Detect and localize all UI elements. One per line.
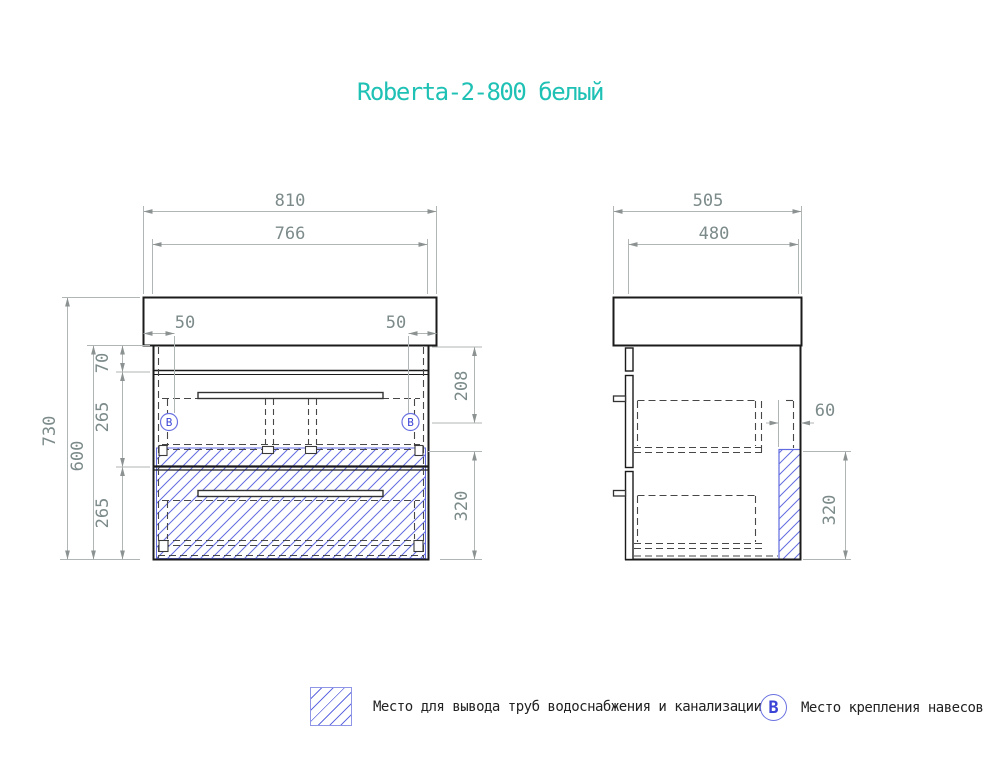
front-pipe-zone-hatch [157,448,426,559]
front-view: В В [40,191,482,560]
dim-600-label: 600 [68,441,88,472]
side-lower-drawer-handle [614,491,626,497]
front-lower-drawer-handle [198,491,383,497]
dim-810-label: 810 [275,191,306,211]
front-upper-drawer-handle [198,393,383,399]
side-hidden-lines [634,401,796,557]
mount-symbol: В [768,698,778,718]
mount-label: Место крепления навесов [801,700,983,716]
mount-symbol: В [407,416,414,429]
dim-265-upper-label: 265 [93,402,113,433]
side-view: 505 480 60 320 [614,191,852,560]
side-handles [614,396,626,496]
dim-730-label: 730 [40,416,60,447]
pipe-hatch-icon [310,687,352,726]
dim-766-label: 766 [275,224,306,244]
dim-505-label: 505 [693,191,724,211]
legend-mounts: В Место крепления навесов [760,694,983,721]
front-mount-point-right: В [402,414,419,431]
dim-50-right-label: 50 [386,313,406,333]
front-mount-point-left: В [161,414,178,431]
dim-320-front-label: 320 [452,491,472,522]
mount-symbol: В [166,416,173,429]
side-pipe-zone-hatch [779,450,801,560]
dim-50-left-label: 50 [175,313,195,333]
dim-70-label: 70 [93,353,113,373]
side-drawer-fronts [626,348,634,560]
dim-60-label: 60 [815,401,835,421]
dim-480-label: 480 [699,224,730,244]
dim-320-side-label: 320 [820,495,840,526]
drawing-canvas: Roberta-2-800 белый [0,0,1000,769]
legend-pipes: Место для вывода труб водоснабжения и ка… [310,687,762,726]
technical-drawing: В В [0,0,1000,769]
side-dimension-lines [614,206,852,560]
side-countertop [614,298,802,346]
dim-265-lower-label: 265 [93,498,113,529]
pipe-hatch-label: Место для вывода труб водоснабжения и ка… [373,699,762,715]
dim-208-label: 208 [452,371,472,402]
side-upper-drawer-handle [614,396,626,402]
mount-circle-icon: В [760,694,787,721]
